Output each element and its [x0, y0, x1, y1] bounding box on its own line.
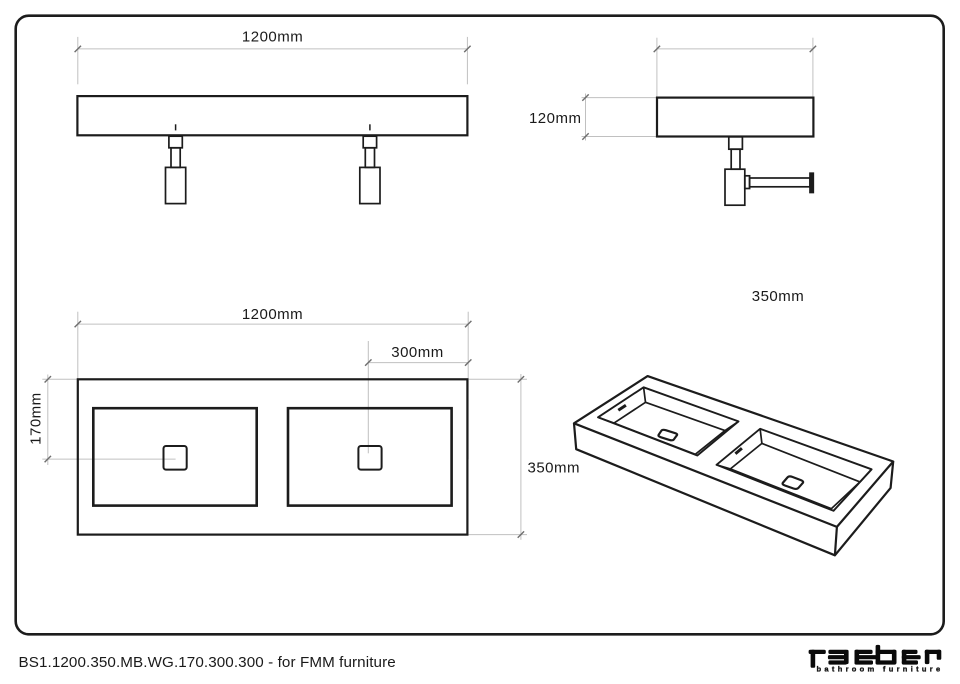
svg-text:120mm: 120mm	[529, 110, 582, 127]
svg-text:350mm: 350mm	[752, 288, 805, 305]
svg-text:BS1.1200.350.MB.WG.170.300.300: BS1.1200.350.MB.WG.170.300.300 - for FMM…	[19, 654, 396, 671]
svg-text:1200mm: 1200mm	[242, 306, 303, 323]
svg-text:350mm: 350mm	[528, 459, 581, 476]
svg-text:bathroom furniture: bathroom furniture	[817, 665, 944, 674]
svg-text:170mm: 170mm	[28, 392, 45, 445]
svg-text:1200mm: 1200mm	[242, 29, 303, 46]
svg-text:300mm: 300mm	[391, 344, 444, 361]
